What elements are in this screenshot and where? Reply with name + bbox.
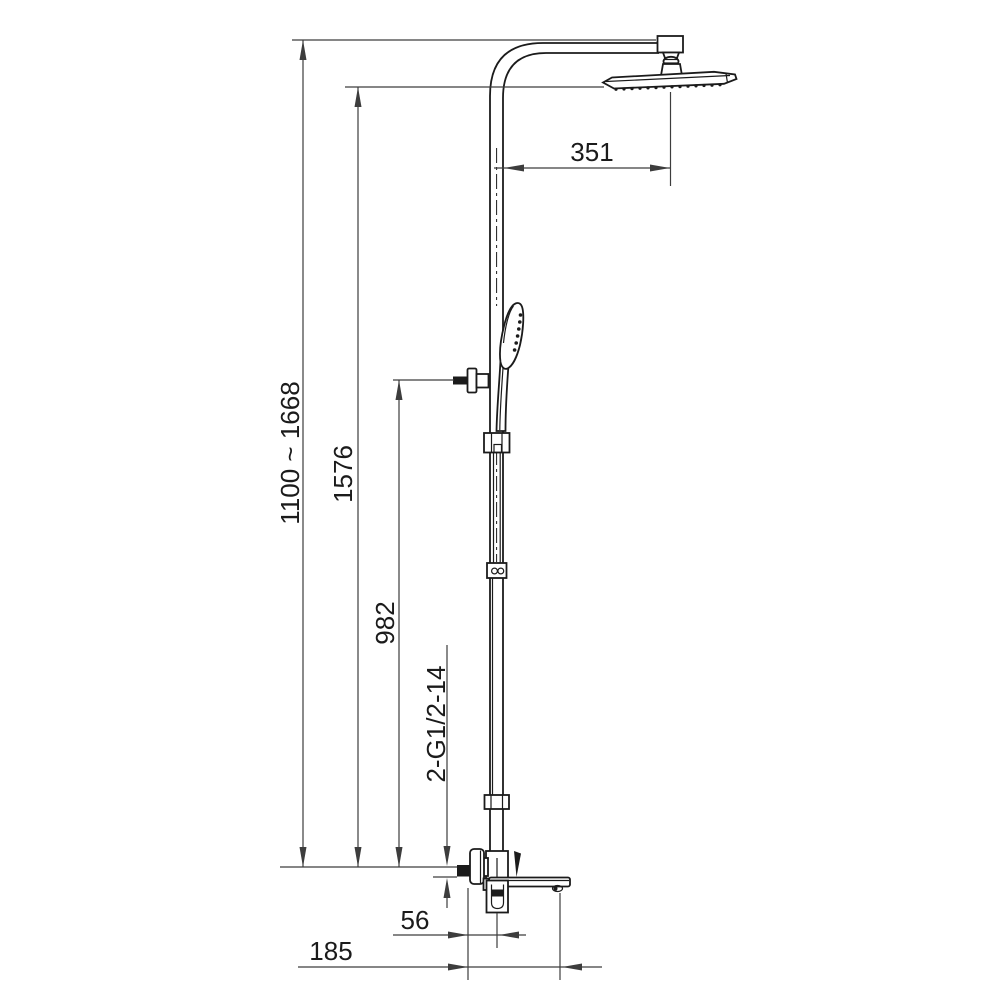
holder-flange [468,369,477,393]
mixer-knob [470,849,484,884]
dim-label-spout-reach: 185 [309,936,352,966]
hand-shower [497,303,524,431]
pipe-collar [485,795,510,809]
arm-end-block [658,36,684,53]
dim-label-holder-height: 982 [370,601,400,644]
mixer-lower-band [492,890,504,897]
riser-pipe-inner-edge [503,53,659,851]
mixer-assembly [457,849,570,913]
spout-outlet-dot [554,886,558,891]
slider-clamp [484,433,510,453]
pipe-joint [487,563,507,578]
diverter-lever [514,851,521,877]
inlet-fitting [457,865,470,877]
dim-label-spout-center: 56 [401,905,430,935]
shower-technical-drawing: 1100 ~ 1668 1576 982 2-G1/2-14 351 56 18… [0,0,1000,1000]
dim-label-head-face-height: 1576 [328,445,358,503]
dim-label-inlet-thread: 2-G1/2-14 [421,665,451,782]
dimension-lines: 1100 ~ 1668 1576 982 2-G1/2-14 351 56 18… [275,40,671,980]
drawing-canvas: 1100 ~ 1668 1576 982 2-G1/2-14 351 56 18… [0,0,1000,1000]
holder-stem [477,374,489,388]
dim-label-arm-reach: 351 [570,137,613,167]
holder-screw [453,377,467,385]
dim-label-overall-height: 1100 ~ 1668 [275,381,305,524]
